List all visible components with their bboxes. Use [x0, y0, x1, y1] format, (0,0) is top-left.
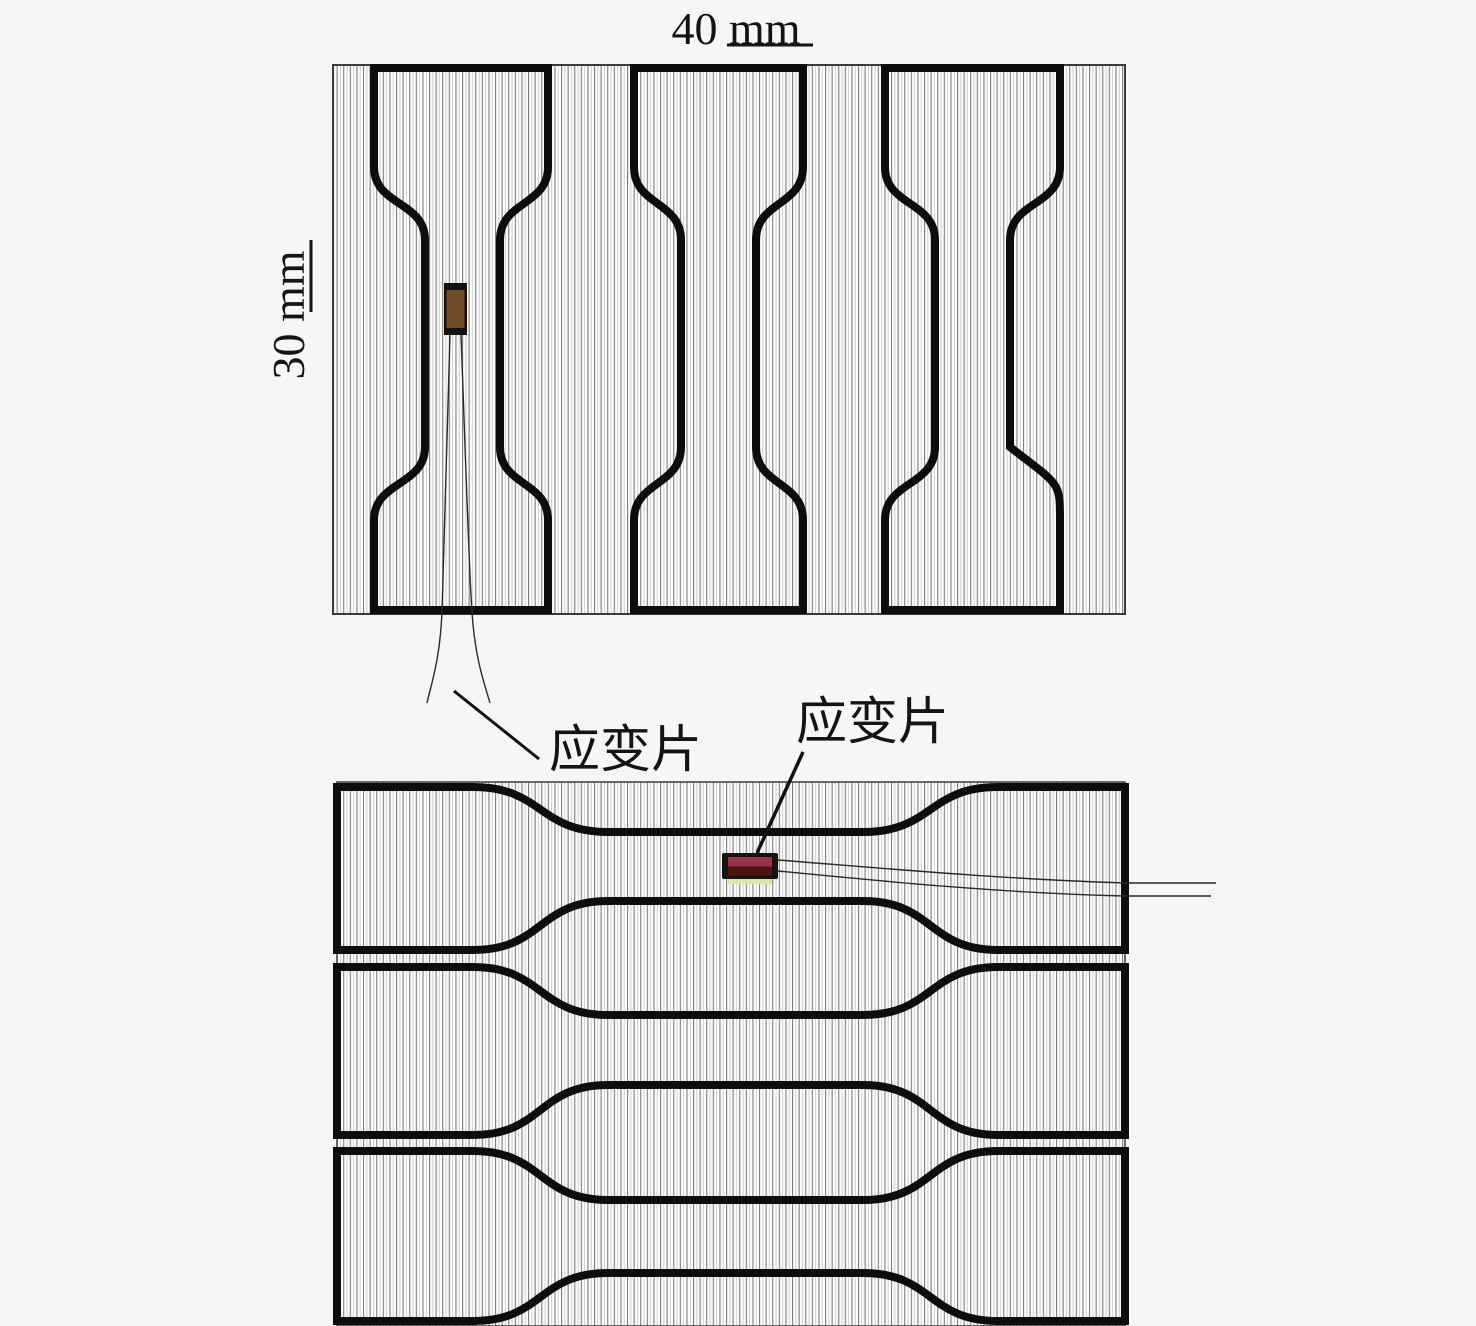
strain-gauge-label-top: 应变片 — [549, 723, 702, 779]
strain-gauge-bottom-grid-upper — [728, 857, 772, 867]
top-gauge-callout: 应变片 — [454, 691, 702, 779]
callout-line-top — [454, 691, 539, 759]
strain-gauge-bottom-backing — [728, 879, 772, 884]
top-panel: 40 mm 30 mm — [263, 3, 1125, 703]
strain-gauge-top — [444, 283, 467, 335]
strain-gauge-top-grid — [447, 290, 465, 328]
figure-page: 40 mm 30 mm 应变片 — [0, 0, 1476, 1326]
strain-gauge-bottom-grid-lower — [728, 867, 772, 876]
bottom-panel — [337, 782, 1216, 1326]
strain-gauge-label-bottom: 应变片 — [796, 695, 949, 751]
height-dimension-label: 30 mm — [263, 250, 314, 379]
strain-gauge-bottom — [722, 853, 778, 884]
specimen-layout-figure: 40 mm 30 mm 应变片 — [0, 0, 1476, 1326]
